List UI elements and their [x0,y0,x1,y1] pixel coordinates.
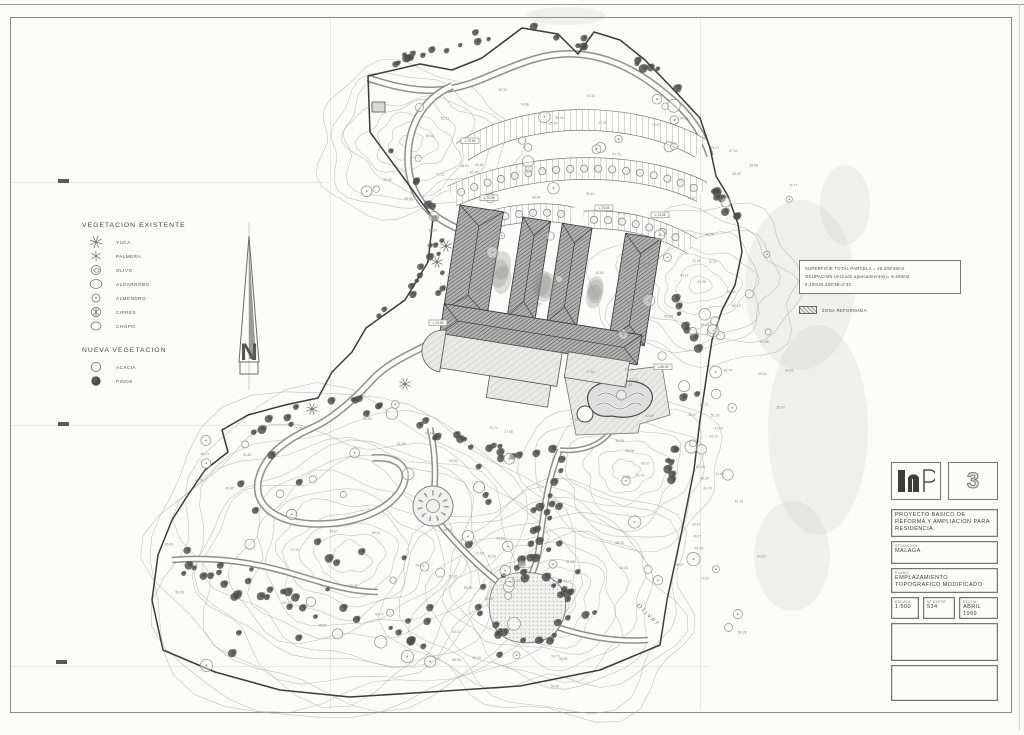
existing-tree [670,143,677,150]
spot-elevation: 55.69 [516,341,525,345]
pine-tree [398,629,402,633]
contour-line [151,383,583,713]
site-notes-box: SUPERFICIE TOTAL PARCELA = 25.208'38m2 O… [799,260,961,294]
legend-existing-items: YUCAPALMERAOLIVOALGARROBOALMENDROCIPRESC… [82,235,214,333]
pine-tree [582,42,587,47]
scan-smudge [526,7,606,25]
pine-tree [482,584,486,588]
spot-elevation: 75.77 [789,183,798,187]
zona-reformada-key: ZONA REFORMADA [799,306,867,314]
pine-tree [407,618,411,622]
star-small-icon [88,249,104,263]
pine-tree [488,499,492,503]
expte-box: Nº EXPTE 534 [923,597,955,619]
spot-elevation: 57.44 [625,368,634,372]
parking-tree [632,220,639,227]
parking-tree [646,224,653,231]
hatch-swatch [799,306,817,314]
pine-tree [553,478,558,483]
spot-elevation: 59.44 [555,116,564,120]
tree-center-dot [634,521,636,523]
legend-item: CHOPO [88,319,214,333]
tree-center-dot [693,558,695,560]
pine-tree [384,306,388,310]
parking-tree [567,165,574,172]
pine-tree [549,637,554,642]
pine-tree [478,464,482,468]
spot-elevation: 45.47 [675,563,684,567]
level-label: L-70.50 [465,139,476,143]
spot-elevation: 75.74 [427,244,436,248]
pine-tree [183,571,186,574]
spot-elevation: 55.89 [429,229,438,233]
pine-tree [315,614,318,617]
pine-tree [671,459,675,463]
parking-tree [604,217,611,224]
spot-elevation: 51.82 [243,453,252,457]
plano-value: EMPLAZAMIENTO TOPOGRAFICO MODIFICADO [895,575,994,589]
pine-tree [238,630,242,634]
pine-tree [477,604,482,609]
pine-tree [379,402,383,406]
legend-new-items: ACACIAPINOS [82,360,214,388]
spot-elevation: 45.89 [225,486,234,490]
pine-tree [724,208,729,213]
pine-tree [479,610,483,614]
existing-tree [518,561,525,568]
spot-elevation: 44.35 [615,439,624,443]
pine-tree [328,554,334,560]
pine-tree [459,435,464,440]
spot-elevation: 41.55 [692,259,701,263]
pine-tree [282,589,286,593]
existing-tree [721,197,731,207]
pine-tree [650,63,655,68]
filled-circle-icon [88,374,104,388]
legend-item-label: PALMERA [116,254,141,259]
parking-tree [595,165,602,172]
pine-tree [657,67,660,70]
spot-elevation: 51.09 [696,465,705,469]
title-block: 3 PROYECTO BASICO DE REFORMA Y AMPLIACIO… [891,462,998,701]
pine-tree [584,611,589,616]
spot-elevation: 41.69 [496,536,505,540]
existing-tree [242,441,249,448]
existing-tree [245,539,255,549]
spot-elevation: 62.23 [629,378,638,382]
parking-tree [664,175,671,182]
parking-tree [529,209,536,216]
pine-tree [567,615,571,619]
svg-text:N: N [240,339,257,366]
note-superficie: SUPERFICIE TOTAL PARCELA = 25.208'38m2 [805,265,955,273]
existing-tree [306,597,316,607]
contour-line [327,540,372,573]
spot-elevation: 47.79 [613,152,622,156]
spot-elevation: 63.81 [475,163,484,167]
spot-elevation: 52.02 [363,417,372,421]
existing-tree [765,329,771,335]
tree-center-dot [788,198,790,200]
parking-tree [557,210,564,217]
tree-center-dot [205,440,207,442]
pine-tree [434,435,438,439]
parking-tree [458,188,465,195]
spot-elevation: 69.19 [732,304,741,308]
pine-tree [682,393,688,399]
spot-elevation: 65.99 [464,586,473,590]
legend-item-label: CHOPO [116,324,135,329]
tree-center-dot [715,371,717,373]
pine-tree [236,590,242,596]
spot-elevation: 43.19 [680,273,689,277]
contour-line [689,276,712,294]
parking-tree [650,172,657,179]
spot-elevation: 55.54 [405,197,414,201]
spot-elevation: 51.31 [441,116,450,120]
pine-tree [269,586,273,590]
pine-tree [410,637,416,643]
existing-tree [662,103,669,110]
spot-elevation: 51.76 [636,473,645,477]
pine-tree [673,445,678,450]
existing-tree [332,629,342,639]
spot-elevation: 75.79 [294,427,303,431]
spot-elevation: 59.27 [330,530,339,534]
pine-tree [188,561,194,567]
tree-center-dot [659,234,661,236]
pine-tree [548,547,551,550]
spot-elevation: 46.92 [488,555,497,559]
sheet-number: 3 [967,468,979,494]
spot-elevation: 65.16 [758,372,767,376]
pine-tree [266,594,270,598]
spot-elevation: 45.53 [383,178,392,182]
spot-elevation: 64.10 [757,555,766,559]
title-block-empty-box [891,665,998,701]
pine-tree [545,572,551,578]
pine-tree [412,51,416,55]
spot-elevation: 50.28 [738,630,747,634]
pine-tree [636,61,639,64]
pine-tree [437,290,441,294]
tree-center-dot [731,407,733,409]
pine-tree [330,397,335,402]
contour-line [313,534,386,587]
pine-tree [499,651,503,655]
spot-elevation: 50.64 [664,315,673,319]
spot-elevation: 65.89 [165,542,174,546]
cypress-icon [88,305,104,319]
pine-tree [736,213,741,218]
open-circle-icon [88,360,104,374]
pine-tree [716,195,720,199]
level-label: L-75.08 [484,196,495,200]
pine-tree [549,493,552,496]
spot-elevation: 67.42 [729,149,738,153]
spot-elevation: 72.19 [290,548,299,552]
pine-tree [667,458,671,462]
pine-tree [549,516,552,519]
pine-tree [231,649,237,655]
tree-center-dot [507,545,509,547]
spot-elevation: 45.50 [318,624,327,628]
pine-tree [419,421,424,426]
legend-existing-title: VEGETACION EXISTENTE [82,222,214,229]
legend-item-label: YUCA [116,240,131,245]
tree-center-dot [715,568,717,570]
pine-tree [523,569,528,574]
tree-center-dot [553,187,555,189]
spot-elevation: 58.94 [461,164,470,168]
tree-center-dot [291,514,293,516]
olive-icon [88,263,104,277]
circle-dot-icon [88,291,104,305]
pine-tree [560,468,563,471]
tree-center-dot [657,579,659,581]
existing-tree [678,381,689,392]
spot-elevation: 65.06 [626,449,635,453]
pine-tree [563,586,567,590]
legend-item: CIPRES [88,305,214,319]
legend-new-title: NUEVA VEGETACION [82,347,214,354]
pine-tree [420,263,424,267]
pine-tree [298,479,303,484]
fecha-value: ABRIL 1999 [963,604,994,618]
parking-tree [553,166,560,173]
tree-center-dot [648,300,650,302]
existing-tree [390,577,396,583]
pine-tree [253,429,257,433]
spot-elevation: 68.74 [621,260,630,264]
legend-item-label: ALMENDRO [116,296,146,301]
pine-tree [530,540,534,544]
pine-tree [271,451,277,457]
pine-tree [684,321,690,327]
pine-tree [676,84,682,90]
existing-tree [505,592,512,599]
spot-elevation: 71.22 [436,172,445,176]
pine-tree [553,583,556,586]
legend-item: PINOS [88,374,214,388]
spot-elevation: 55.20 [533,303,542,307]
architect-logo [891,462,941,500]
pine-tree [535,449,540,454]
pine-tree [356,616,361,621]
pine-tree [342,604,347,609]
pine-tree [594,610,597,613]
spot-elevation: 57.20 [587,94,596,98]
pine-tree [219,562,224,567]
tree-center-dot [666,257,668,259]
spot-elevation: 63.37 [641,461,650,465]
pine-tree [456,431,461,436]
spot-elevation: 54.10 [709,435,718,439]
legend-item: YUCA [88,235,214,249]
spot-elevation: 65.92 [701,323,710,327]
pine-tree [667,464,673,470]
parking-tree [497,175,504,182]
pine-tree [294,593,300,599]
pine-tree [499,444,502,447]
existing-tree [546,232,554,240]
existing-tree [667,99,680,112]
tree-center-dot [206,665,208,667]
mp-logo-icon [897,468,935,494]
pine-tree [435,242,439,246]
existing-tree [689,440,696,447]
spot-elevation: 71.77 [563,579,572,583]
existing-tree [524,144,532,152]
pine-tree [538,537,544,543]
jacuzzi [577,406,593,422]
north-arrow: N [228,222,272,390]
spot-elevation: 75.92 [446,275,455,279]
spot-elevation: 66.84 [532,195,541,199]
spot-elevation: 47.81 [586,370,595,374]
pine-tree [675,294,681,300]
spot-elevation: 74.86 [520,102,529,106]
pine-tree [290,422,293,425]
existing-tree [473,482,484,493]
ellipse-large-icon [88,277,104,291]
tree-center-dot [433,215,435,217]
parking-tree [609,166,616,173]
escala-value: 1:500 [895,604,915,611]
existing-tree [415,155,421,161]
parking-tree [511,172,518,179]
terrain-label: Olivar [635,602,663,628]
parking-tree [581,165,588,172]
vegetation-legend: VEGETACION EXISTENTE YUCAPALMERAOLIVOALG… [78,218,214,392]
tree-center-dot [354,452,356,454]
spot-elevation: 51.68 [566,560,575,564]
spot-elevation: 44.03 [680,117,689,121]
tree-center-dot [492,252,494,254]
parking-tree [623,167,630,174]
pine-tree [556,34,560,38]
pine-tree [261,425,267,431]
pine-tree [395,61,399,65]
pine-tree [186,547,191,552]
spot-elevation: 50.65 [175,591,184,595]
parking-tree [543,209,550,216]
spot-elevation: 72.96 [476,552,485,556]
tree-center-dot [737,613,739,615]
tree-center-dot [501,235,503,237]
tree-center-dot [766,253,768,255]
existing-tree [373,186,380,193]
expte-value: 534 [927,604,951,611]
parking-tree [516,210,523,217]
spot-elevation: 70.37 [687,197,696,201]
pine-tree [678,302,683,307]
pine-tree [539,502,545,508]
pine-tree [423,643,427,647]
pine-tree [442,270,445,273]
tree-center-dot [508,458,510,460]
pine-tree [460,43,463,46]
existing-tree [699,309,711,321]
level-label: L-75.08 [599,206,610,210]
spot-elevation: 67.65 [643,262,652,266]
pine-tree [438,252,441,255]
spot-elevation: 53.33 [449,459,458,463]
pine-tree [470,444,474,448]
spot-elevation: 63.58 [425,431,434,435]
legend-item: ALMENDRO [88,291,214,305]
spot-elevation: 50.68 [551,684,560,688]
spot-elevation: 71.73 [489,426,498,430]
existing-tree [309,476,316,483]
spot-elevation: 65.85 [549,122,558,126]
spot-elevation: 52.81 [449,574,458,578]
pine-tree [716,187,721,192]
pine-tree [412,291,417,296]
spot-elevation: 44.79 [195,478,204,482]
spot-elevation: 70.29 [652,123,661,127]
tree-center-dot [366,190,368,192]
spot-elevation: 41.79 [703,487,712,491]
tree-center-dot [673,119,675,121]
pine-tree [558,540,562,544]
pine-tree [535,553,541,559]
pine-tree [210,572,215,577]
spot-elevation: 75.17 [711,146,720,150]
drawing-sheet: 49.4045.9071.7352.0271.7751.8254.7945.47… [0,0,1024,735]
escala-box: ESCALA 1:500 [891,597,919,619]
tree-center-dot [407,656,409,658]
pine-tree [522,637,526,641]
pine-tree [223,580,228,585]
ellipse-icon [88,319,104,333]
spot-elevation: 67.28 [598,121,607,125]
spot-elevation: 57.72 [700,403,709,407]
contour-line [565,430,681,517]
legend-item: ACACIA [88,360,214,374]
existing-tree [658,352,666,360]
spot-elevation: 59.30 [498,88,507,92]
spot-elevation: 41.09 [627,301,636,305]
legend-item-label: CIPRES [116,310,136,315]
spot-elevation: 45.90 [559,657,568,661]
spot-elevation: 60.82 [624,383,633,387]
existing-tree [644,565,652,573]
existing-tree [724,623,732,631]
spot-elevation: 72.20 [701,577,710,581]
spot-elevation: 61.85 [760,340,769,344]
tree-center-dot [543,116,545,118]
pine-tree [411,283,415,287]
pine-tree [254,507,259,512]
existing-tree [722,469,733,480]
pine-tree [260,592,266,598]
spot-elevation: 50.45 [694,547,703,551]
pine-tree [442,285,446,289]
level-label: L-73.08 [433,321,444,325]
legend-item: OLIVO [88,263,214,277]
pine-tree [378,313,381,316]
spot-elevation: 59.31 [349,584,358,588]
spot-elevation: 41.13 [735,499,744,503]
pine-tree [295,404,299,408]
spot-elevation: 49.74 [724,369,733,373]
pine-tree [240,480,245,485]
parking-tree [471,183,478,190]
pine-tree [317,538,322,543]
spot-elevation: 74.98 [512,579,521,583]
existing-tree [519,137,526,144]
